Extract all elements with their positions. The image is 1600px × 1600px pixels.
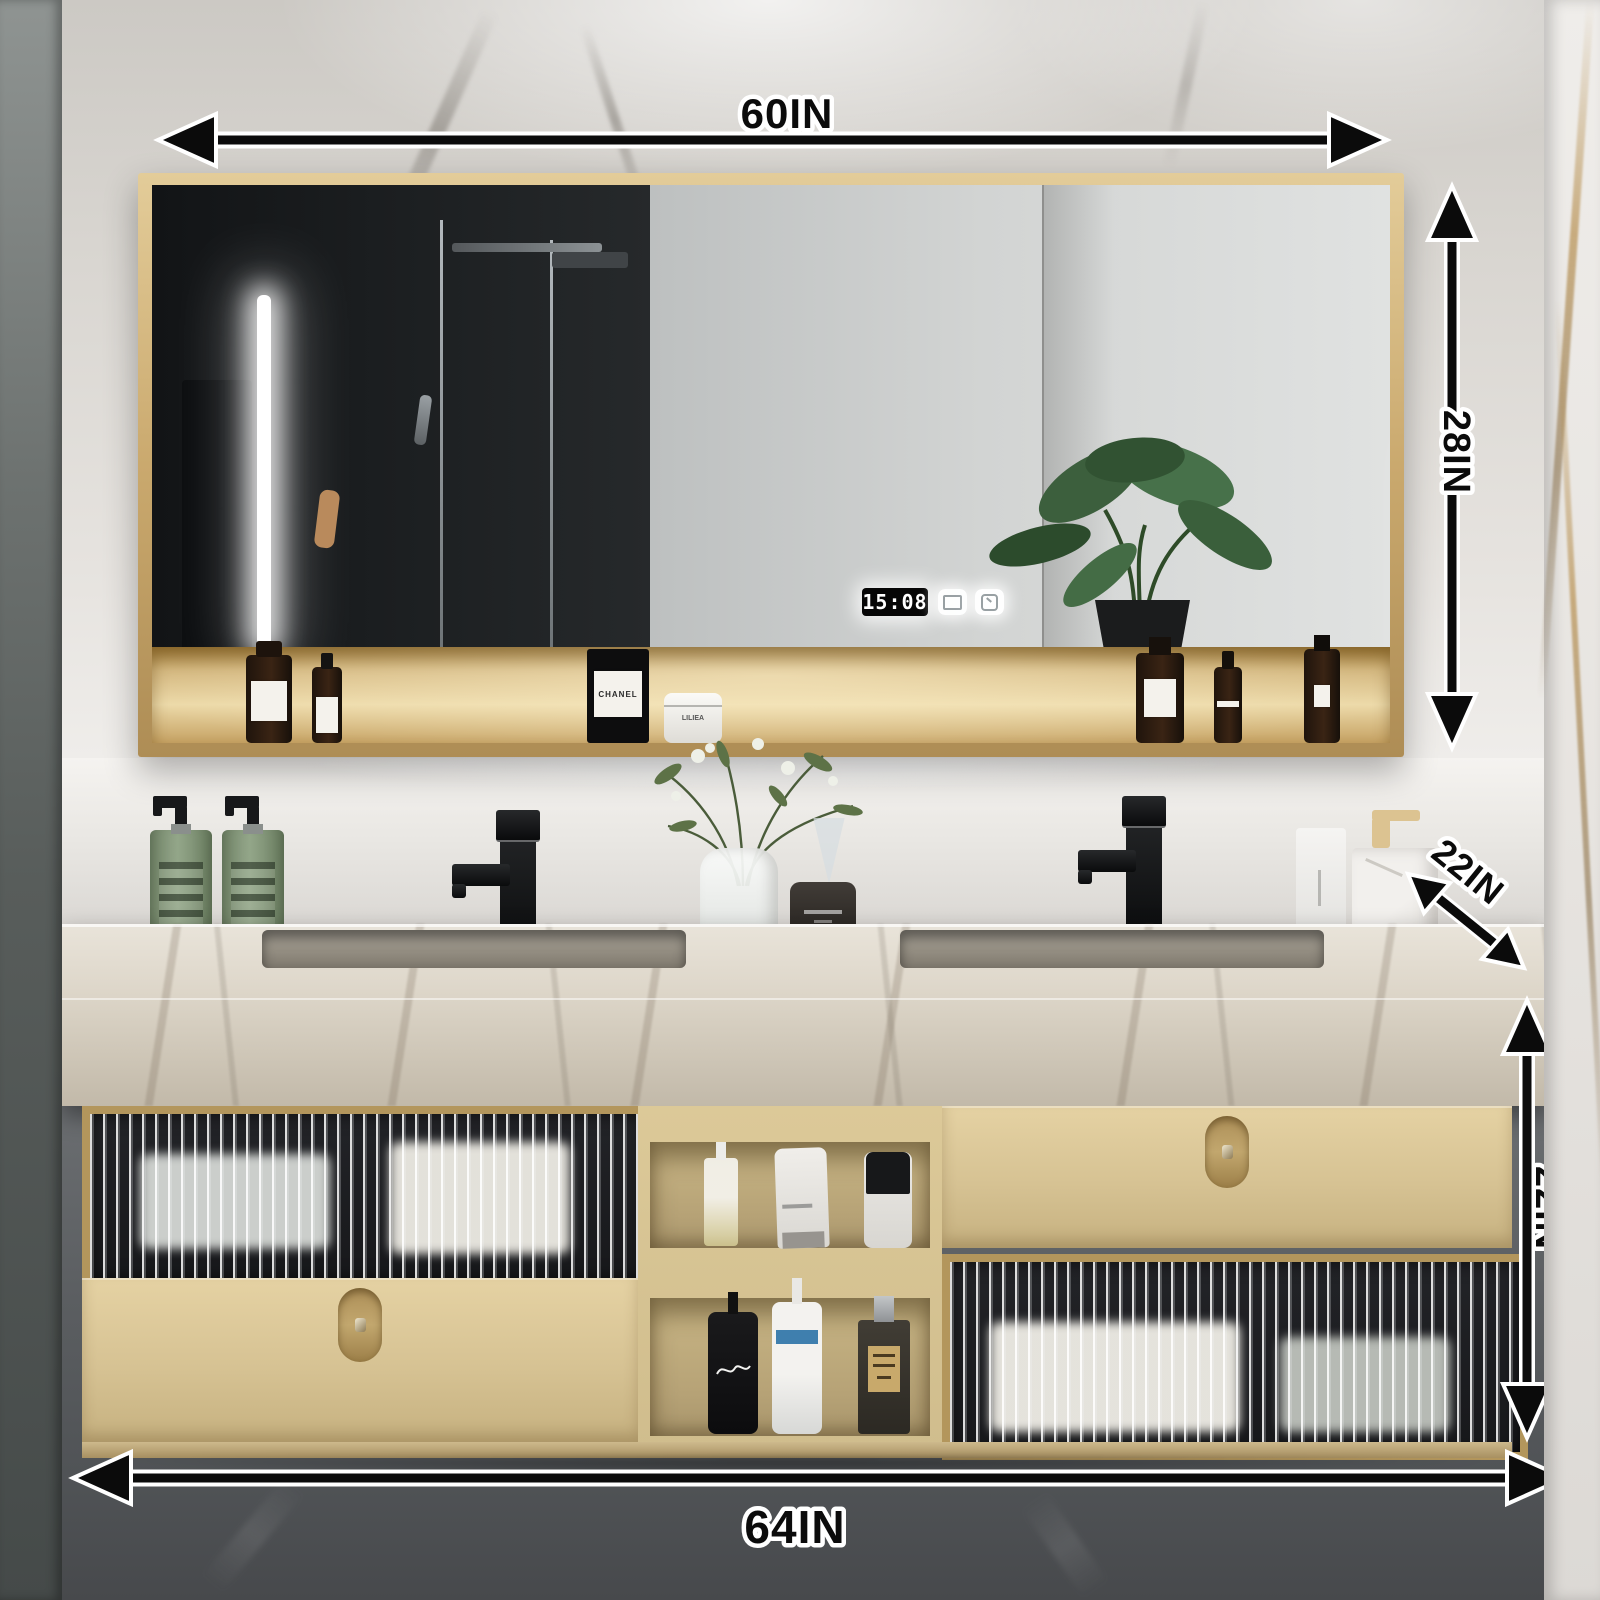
candle-brand-text: CHANEL — [598, 690, 637, 699]
black-pump-bottle — [708, 1312, 758, 1434]
drawer-hook-left — [355, 1318, 366, 1332]
faucet-right-spout — [1078, 850, 1136, 872]
diffuser-label-line-2 — [814, 920, 832, 923]
cabinet-drop-shadow — [100, 1458, 1494, 1476]
cologne-gold-label — [868, 1346, 900, 1392]
led-strip-left — [257, 295, 271, 647]
shower-hose — [550, 240, 553, 647]
wooden-brush — [314, 489, 341, 549]
right-marble-panel — [1544, 0, 1600, 1600]
dropper-band-right — [1217, 701, 1239, 707]
counter-back-edge — [62, 924, 1546, 927]
deodorant-cap — [866, 1152, 910, 1194]
faucet-left-spout — [452, 864, 510, 886]
white-bottle-blue-band — [776, 1330, 818, 1344]
dispenser-window — [1318, 870, 1321, 906]
candle-label: CHANEL — [594, 671, 642, 717]
bathroom-vanity-photo: 15:08 — [0, 0, 1600, 1600]
dropper-label — [316, 697, 338, 733]
vase-greenery — [628, 726, 928, 901]
countertop — [62, 924, 1546, 1106]
faucet-left-handle — [496, 810, 540, 842]
black-pump-stem — [728, 1292, 738, 1314]
soap-label-2 — [231, 862, 275, 928]
perfume-bottle-right — [1136, 653, 1184, 743]
cologne-bottle-right — [1304, 649, 1340, 743]
shelf-opening-bottom — [650, 1298, 930, 1436]
handheld-sprayer — [414, 394, 433, 445]
defog-icon — [938, 589, 967, 615]
left-wall-pillar — [0, 0, 62, 1600]
dimmer-needle — [986, 597, 992, 602]
white-pump-stem — [792, 1278, 802, 1304]
plain-drawer-left — [82, 1278, 638, 1442]
deodorant-bottle — [864, 1152, 912, 1248]
dimmer-glyph — [981, 594, 998, 611]
black-bottle-script — [713, 1360, 753, 1380]
drawer-hook-right — [1222, 1145, 1233, 1159]
dropper-cap-right — [1222, 651, 1234, 669]
dropper-bottle-right — [1214, 667, 1242, 743]
plain-drawer-right — [942, 1106, 1512, 1248]
tube-cap — [782, 1231, 825, 1248]
amber-bottle-neck — [256, 641, 282, 657]
mirror-plant — [985, 425, 1295, 647]
sink-left — [262, 930, 686, 968]
white-pump-bottle — [772, 1302, 822, 1434]
amber-bottle-label — [251, 681, 287, 721]
serum-pump — [716, 1142, 726, 1160]
marble-pump-stem — [1372, 818, 1390, 848]
jar-lid-line — [664, 705, 722, 707]
amber-bottle-large — [246, 655, 292, 743]
fluted-drawer-right — [942, 1254, 1528, 1460]
cologne-silver-cap — [874, 1296, 894, 1322]
perfume-label — [1144, 679, 1176, 717]
fluted-drawer-left — [82, 1106, 654, 1288]
gold-marble-vein-2 — [1554, 300, 1600, 1199]
soap-label-1 — [159, 862, 203, 928]
mirror-glass: 15:08 — [152, 185, 1390, 647]
dropper-cap — [321, 653, 333, 669]
light-dimmer-icon — [975, 589, 1004, 615]
cabinet-base — [82, 1442, 1512, 1458]
cologne-label-line3 — [877, 1376, 891, 1379]
mirror-light-reflection: 15:08 — [650, 185, 1390, 647]
jar-brand-text: LILIEA — [664, 715, 722, 722]
cologne-label-line2 — [873, 1364, 895, 1367]
cologne-cap-right — [1314, 635, 1330, 651]
mirror-cabinet: 15:08 — [138, 173, 1404, 757]
dark-door-reflection — [182, 380, 252, 647]
diffuser-label-line — [804, 910, 842, 914]
shower-arm — [452, 243, 602, 252]
clock-display: 15:08 — [862, 588, 928, 616]
marble-pump-arm — [1372, 810, 1420, 821]
mirror-dark-reflection — [152, 185, 650, 647]
faucet-right — [1078, 796, 1162, 942]
sink-right — [900, 930, 1324, 968]
cosmetic-tube — [774, 1147, 829, 1249]
clock-time: 15:08 — [862, 590, 927, 614]
faucet-right-handle — [1122, 796, 1166, 828]
faucet-right-spout-tip — [1078, 870, 1092, 884]
drawer-handle-right — [1205, 1116, 1249, 1188]
drawer-handle-left — [338, 1288, 382, 1362]
shelf-opening-top — [650, 1142, 930, 1248]
serum-bottle — [704, 1158, 738, 1246]
fluted-glass-texture-right — [950, 1262, 1520, 1452]
defog-glyph — [943, 595, 962, 610]
shower-rail — [440, 220, 443, 647]
counter-front-edge-highlight — [62, 998, 1546, 1000]
gold-marble-vein-1 — [1538, 1, 1595, 700]
marble-vein-detail — [1365, 858, 1403, 877]
cologne-label-line1 — [873, 1354, 895, 1357]
soap-pump-tip-2 — [225, 804, 234, 816]
soap-collar-2 — [243, 824, 263, 834]
fluted-glass-texture-left — [90, 1114, 646, 1280]
tube-text-line — [782, 1204, 812, 1209]
faucet-left-spout-tip — [452, 884, 466, 898]
cologne-boxed-bottle — [858, 1320, 910, 1434]
mid-shelf-unit — [638, 1106, 942, 1450]
shower-head — [552, 252, 628, 268]
amber-dropper-bottle — [312, 667, 342, 743]
perfume-cap — [1149, 637, 1171, 655]
cologne-label-right — [1314, 685, 1330, 707]
soap-pump-tip-1 — [153, 804, 162, 816]
soap-collar-1 — [171, 824, 191, 834]
